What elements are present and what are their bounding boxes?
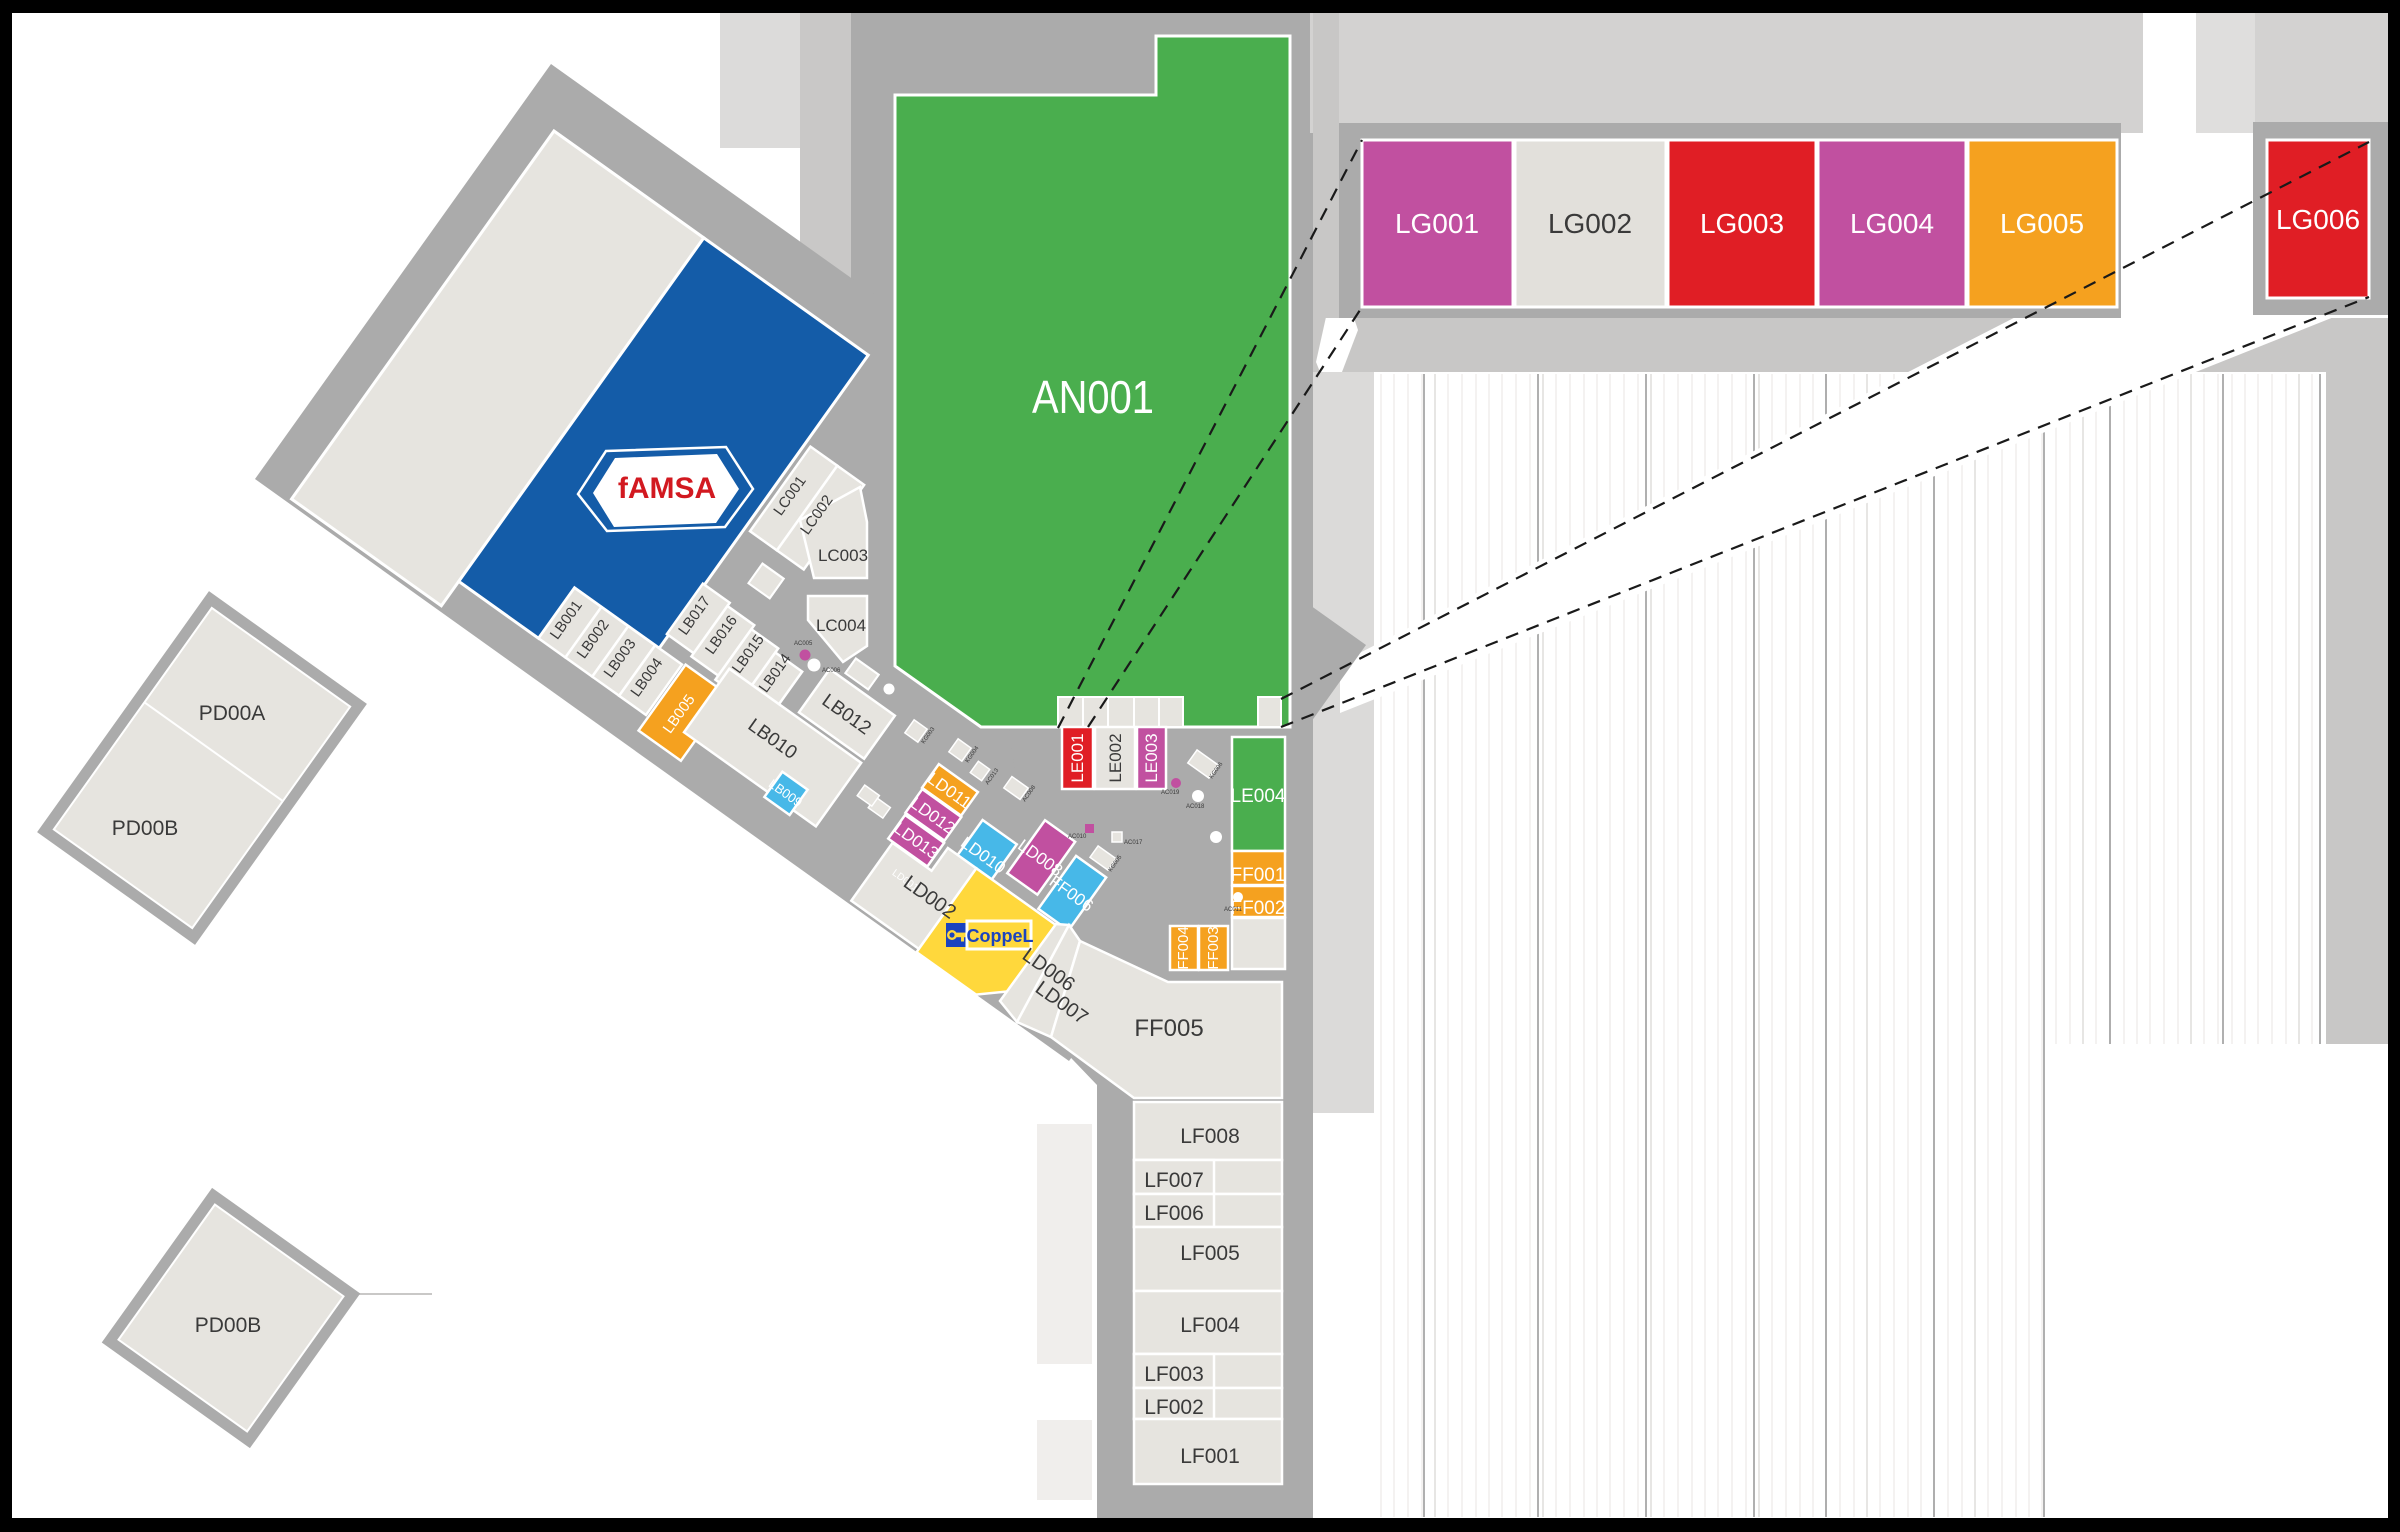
svg-text:AC006: AC006 [822, 668, 841, 674]
svg-text:LC003: LC003 [818, 546, 868, 565]
svg-text:FF001: FF001 [1231, 865, 1286, 886]
svg-text:LE004: LE004 [1231, 786, 1286, 807]
svg-text:LF007: LF007 [1144, 1169, 1204, 1192]
svg-text:LF003: LF003 [1144, 1363, 1204, 1386]
svg-text:FF004: FF004 [1175, 926, 1192, 969]
svg-text:LE001: LE001 [1068, 733, 1087, 782]
svg-text:LF004: LF004 [1180, 1314, 1240, 1337]
svg-text:LG006: LG006 [2276, 204, 2360, 235]
svg-text:LC004: LC004 [816, 616, 866, 635]
svg-text:LG002: LG002 [1548, 208, 1632, 239]
svg-text:AC019: AC019 [1161, 790, 1180, 796]
svg-text:AC011: AC011 [1224, 907, 1243, 913]
svg-text:FF003: FF003 [1205, 926, 1222, 969]
svg-text:PD00A: PD00A [199, 702, 266, 725]
svg-text:fAMSA: fAMSA [618, 472, 716, 505]
svg-text:LE002: LE002 [1106, 733, 1125, 782]
svg-text:LE003: LE003 [1142, 733, 1161, 782]
svg-text:LG005: LG005 [2000, 208, 2084, 239]
svg-text:AC017: AC017 [1124, 840, 1143, 846]
svg-text:LG001: LG001 [1395, 208, 1479, 239]
svg-text:PD00B: PD00B [112, 817, 179, 840]
svg-text:AC010: AC010 [1068, 834, 1087, 840]
svg-text:CoppeL: CoppeL [967, 926, 1034, 946]
svg-text:LG004: LG004 [1850, 208, 1934, 239]
svg-text:LF006: LF006 [1144, 1202, 1204, 1225]
svg-text:AC018: AC018 [1186, 804, 1205, 810]
svg-text:AC005: AC005 [794, 641, 813, 647]
svg-text:FF005: FF005 [1134, 1015, 1203, 1042]
svg-text:LF008: LF008 [1180, 1125, 1240, 1148]
svg-text:LF001: LF001 [1180, 1445, 1240, 1468]
svg-text:AN001: AN001 [1032, 371, 1154, 423]
svg-text:LG003: LG003 [1700, 208, 1784, 239]
svg-text:LF002: LF002 [1144, 1396, 1204, 1419]
svg-text:PD00B: PD00B [195, 1314, 262, 1337]
svg-text:LF005: LF005 [1180, 1242, 1240, 1265]
